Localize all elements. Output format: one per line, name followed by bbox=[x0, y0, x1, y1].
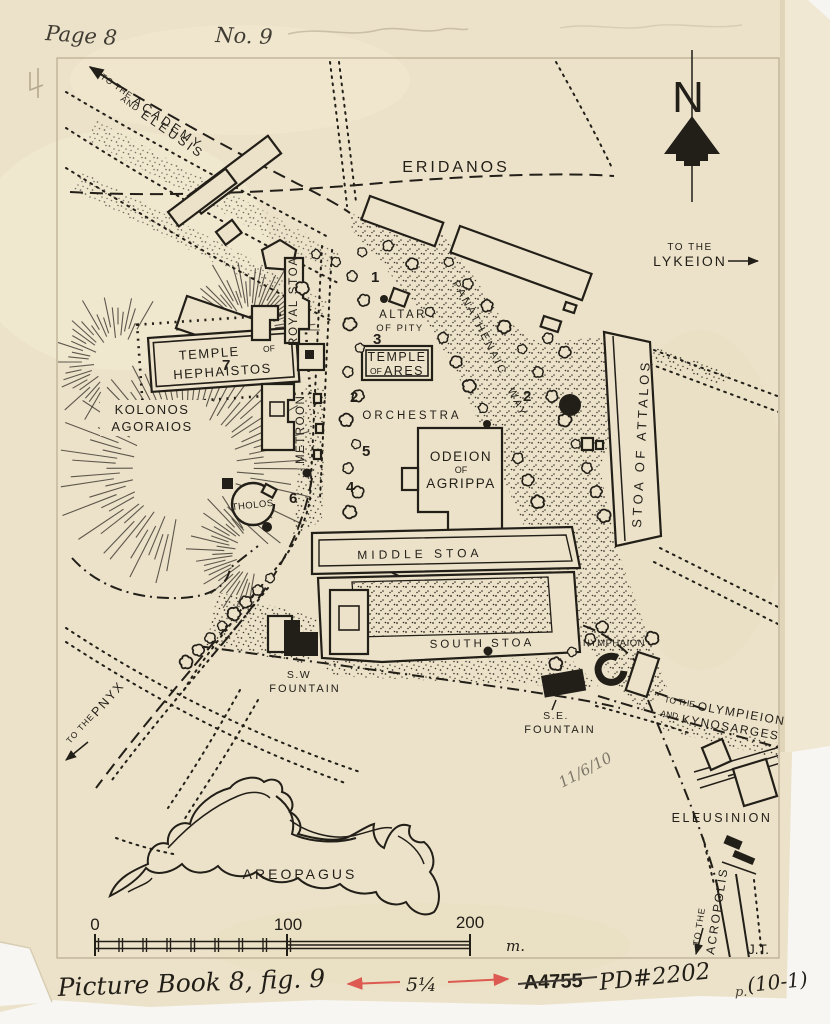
altar-label-1: ALTAR bbox=[379, 309, 427, 321]
scanned-map-sheet: TEMPLE OF HEPHAISTOS TEMPLE OF ARES bbox=[0, 0, 830, 1024]
svg-text:6: 6 bbox=[289, 490, 297, 507]
orchestra-label: ORCHESTRA bbox=[362, 410, 461, 422]
royal-stoa-label: ROYAL STOA bbox=[288, 256, 300, 346]
odeion-label-3: AGRIPPA bbox=[426, 476, 496, 491]
scale-200: 200 bbox=[456, 913, 484, 932]
middle-stoa-label: MIDDLE STOA bbox=[357, 546, 482, 562]
scale-100: 100 bbox=[274, 915, 302, 934]
to-lykeion-label-2: LYKEION bbox=[653, 253, 727, 269]
eridanos-label: ERIDANOS bbox=[402, 159, 510, 176]
south-stoa-label: SOUTH STOA bbox=[430, 637, 535, 651]
svg-text:2: 2 bbox=[523, 388, 531, 405]
altar-label-2: OF PITY bbox=[376, 323, 423, 334]
svg-text:7: 7 bbox=[222, 357, 230, 374]
metroon-label: METROON bbox=[295, 395, 307, 464]
areopagus-label: AREOPAGUS bbox=[243, 866, 358, 882]
ares-label-2: ARES bbox=[384, 364, 424, 378]
agora-plan-svg: TEMPLE OF HEPHAISTOS TEMPLE OF ARES bbox=[0, 0, 830, 1024]
measure-note: 5¼ bbox=[406, 974, 437, 996]
scale-unit: m. bbox=[506, 937, 525, 955]
initials: J.T. bbox=[748, 942, 769, 957]
se-fountain-label-1: S.E. bbox=[543, 710, 569, 722]
ares-label-1: TEMPLE bbox=[367, 350, 426, 364]
scale-0: 0 bbox=[90, 915, 99, 934]
svg-text:1: 1 bbox=[371, 269, 379, 286]
hephaistos-label-of: OF bbox=[263, 343, 275, 354]
to-lykeion-label-1: TO THE bbox=[667, 242, 712, 253]
p-small-note: p. bbox=[735, 985, 747, 1000]
svg-text:4: 4 bbox=[346, 479, 355, 496]
svg-text:3: 3 bbox=[373, 331, 381, 348]
odeion-label-2: OF bbox=[455, 465, 468, 475]
svg-text:2: 2 bbox=[350, 389, 358, 406]
kolonos-label-2: AGORAIOS bbox=[111, 419, 192, 434]
ares-label-of: OF bbox=[370, 366, 382, 376]
nymphaion-label: NYMPHAION bbox=[583, 638, 645, 649]
temple-of-ares-label-box: TEMPLE OF ARES bbox=[362, 346, 432, 380]
north-letter: N bbox=[672, 73, 704, 122]
eleusinion-label: ELEUSINION bbox=[672, 811, 773, 825]
paper-fold-crease bbox=[780, 0, 785, 752]
figure-number-note: No. 9 bbox=[214, 23, 273, 49]
round-monument bbox=[559, 394, 581, 416]
kolonos-label-1: KOLONOS bbox=[115, 402, 190, 417]
odeion-label-1: ODEION bbox=[430, 449, 492, 464]
sw-fountain-label-2: FOUNTAIN bbox=[269, 683, 340, 695]
se-fountain-label-2: FOUNTAIN bbox=[524, 724, 595, 736]
sw-fountain-label-1: S.W bbox=[287, 669, 311, 681]
south-court-stippled bbox=[352, 577, 552, 637]
page-number-note: Page 8 bbox=[44, 21, 118, 50]
svg-text:5: 5 bbox=[362, 443, 370, 460]
